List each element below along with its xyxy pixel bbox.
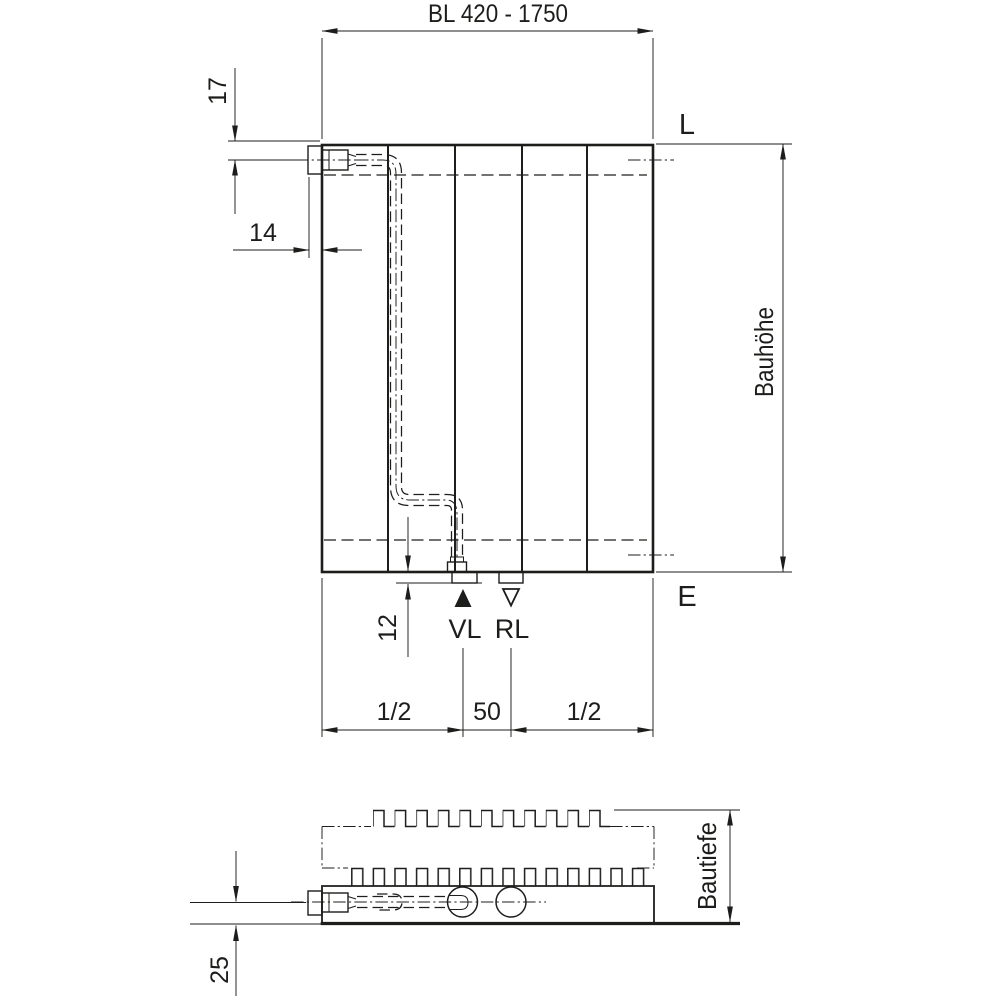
vent-position-label: L [679,109,695,141]
drawing-svg: BL 420 - 1750 17 14 [0,0,1000,1000]
front-view: BL 420 - 1750 17 14 [204,0,792,737]
dimension-bl-label: BL 420 - 1750 [428,0,568,28]
pipe-centerline [356,160,457,558]
supply-pipe [356,155,467,573]
dimension-half-right-label: 1/2 [567,698,602,726]
top-connection-fitting [296,146,364,174]
pipe-wall-outer [356,155,463,558]
bauhoehe-label: Bauhöhe [749,307,779,397]
pipe-nut [448,562,467,572]
drain-position-label: E [677,581,696,613]
dimension-12-label: 12 [374,614,402,642]
dimension-17-label: 17 [204,77,232,105]
dimension-14-label: 14 [249,219,277,247]
pipe-end-slot [449,896,468,910]
pipe-collar [451,557,464,562]
fin-row-back [373,810,610,828]
radiator-technical-drawing: BL 420 - 1750 17 14 [0,0,1000,1000]
dimension-height: Bauhöhe L E [656,109,792,613]
rl-label: RL [495,614,530,644]
dimension-top-connection-offset: 17 [204,68,320,214]
rl-connection-stub [499,572,523,583]
bautiefe-label: Bautiefe [692,822,722,910]
fin-block-phantom-outline [322,827,654,869]
side-connection-fitting [308,891,356,915]
top-view: 25 Bautiefe [190,810,740,997]
dimension-axis-to-bottom: 25 [190,851,321,996]
dimension-25-label: 25 [206,956,234,984]
dimension-overall-length: BL 420 - 1750 [322,0,653,139]
fitting-body [322,893,348,912]
dimension-half-left-label: 1/2 [377,698,412,726]
vl-label: VL [448,614,481,644]
body-outline [322,886,654,922]
supply-flow-triangle-icon [455,589,472,607]
fitting-cone [348,893,356,912]
dimension-50-label: 50 [473,698,501,726]
vl-connection-stub [452,572,477,583]
radiator-body [322,145,653,572]
fin-row-front [351,868,648,887]
connection-plug [308,891,322,915]
dimension-connection-positions: 1/2 50 1/2 [322,578,653,737]
dimension-plug-protrusion: 14 [233,177,362,258]
panel-separators [388,146,587,571]
pipe-wall-inner [356,166,452,558]
return-flow-triangle-icon [503,589,519,606]
